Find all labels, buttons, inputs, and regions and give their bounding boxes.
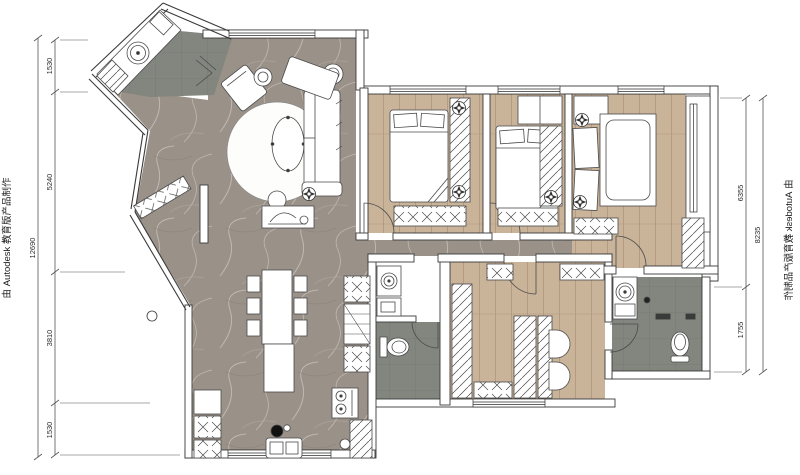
window-bedroom1 xyxy=(390,86,466,94)
coffee-table xyxy=(272,117,304,171)
dining-chair xyxy=(294,298,307,314)
dim-right-seg-0: 6355 xyxy=(736,185,745,202)
ceiling-light-icon xyxy=(574,196,587,209)
dim-left-seg-3: 1530 xyxy=(45,422,54,439)
toilet-tank xyxy=(380,337,387,357)
dining-chair xyxy=(294,320,307,336)
dining-table xyxy=(262,270,292,344)
kitchen-cabinet-x xyxy=(344,276,370,302)
tv-console xyxy=(262,206,314,228)
floor-plan-drawing: 1530 5240 3810 1530 12690 6355 1755 8235… xyxy=(0,0,800,475)
study-cabinet1 xyxy=(514,316,536,398)
watermark-right: 由 Autodesk 教育版产品制作 xyxy=(783,180,795,301)
kitchen-cabinet-h xyxy=(350,420,372,458)
window-bedroom2 xyxy=(498,86,560,94)
bench2 xyxy=(498,208,558,226)
master-wardrobe xyxy=(682,218,704,268)
toilet-main xyxy=(671,332,689,362)
ceiling-light-icon xyxy=(453,102,466,115)
study-bench-top2 xyxy=(560,264,604,280)
ceiling-light-icon xyxy=(303,188,316,201)
study-bench-top1 xyxy=(487,264,513,280)
small-bath xyxy=(380,337,409,357)
master-headboard xyxy=(573,127,599,168)
kitchen-pot xyxy=(340,439,350,449)
entry-door-knob xyxy=(147,311,157,321)
ceiling-light-icon xyxy=(545,191,558,204)
floor-drain xyxy=(644,297,650,303)
dining-chair xyxy=(294,276,307,292)
washing-machine xyxy=(377,266,401,296)
dining-chair xyxy=(247,276,260,292)
kitchen-cabinet-x xyxy=(344,346,370,372)
dim-left-seg-1: 5240 xyxy=(45,174,54,191)
study-wardrobe-left xyxy=(452,284,472,398)
kitchen-cabinet-x xyxy=(194,440,221,458)
window-master xyxy=(618,86,664,94)
dim-left-overall: 12690 xyxy=(28,238,37,259)
kitchen-cabinet xyxy=(194,390,221,414)
bench1 xyxy=(394,206,466,226)
ceiling-light-icon xyxy=(453,186,466,199)
laundry-counter xyxy=(377,298,401,316)
window-study xyxy=(473,399,545,407)
small-bath-floor xyxy=(376,322,443,399)
kitchen-island xyxy=(264,344,294,392)
master-bench xyxy=(574,218,618,234)
kitchen-cabinet-x xyxy=(194,416,221,438)
dim-left-seg-2: 3810 xyxy=(45,330,54,347)
dining-chair xyxy=(247,320,260,336)
window-master-bay xyxy=(686,96,710,232)
dim-right-overall: 8235 xyxy=(753,227,762,244)
window-living-top xyxy=(229,30,315,38)
dining-chair xyxy=(247,298,260,314)
watermark-left: 由 Autodesk 教育版产品制作 xyxy=(1,177,13,298)
floor-plan-canvas: 1530 5240 3810 1530 12690 6355 1755 8235… xyxy=(0,0,800,475)
dim-left-seg-0: 1530 xyxy=(45,58,54,75)
ceiling-light-icon xyxy=(576,114,589,127)
study-bench-bottom xyxy=(474,382,512,398)
bedroom1 xyxy=(390,98,470,226)
dim-right-seg-1: 1755 xyxy=(736,322,745,339)
stove xyxy=(332,388,358,418)
